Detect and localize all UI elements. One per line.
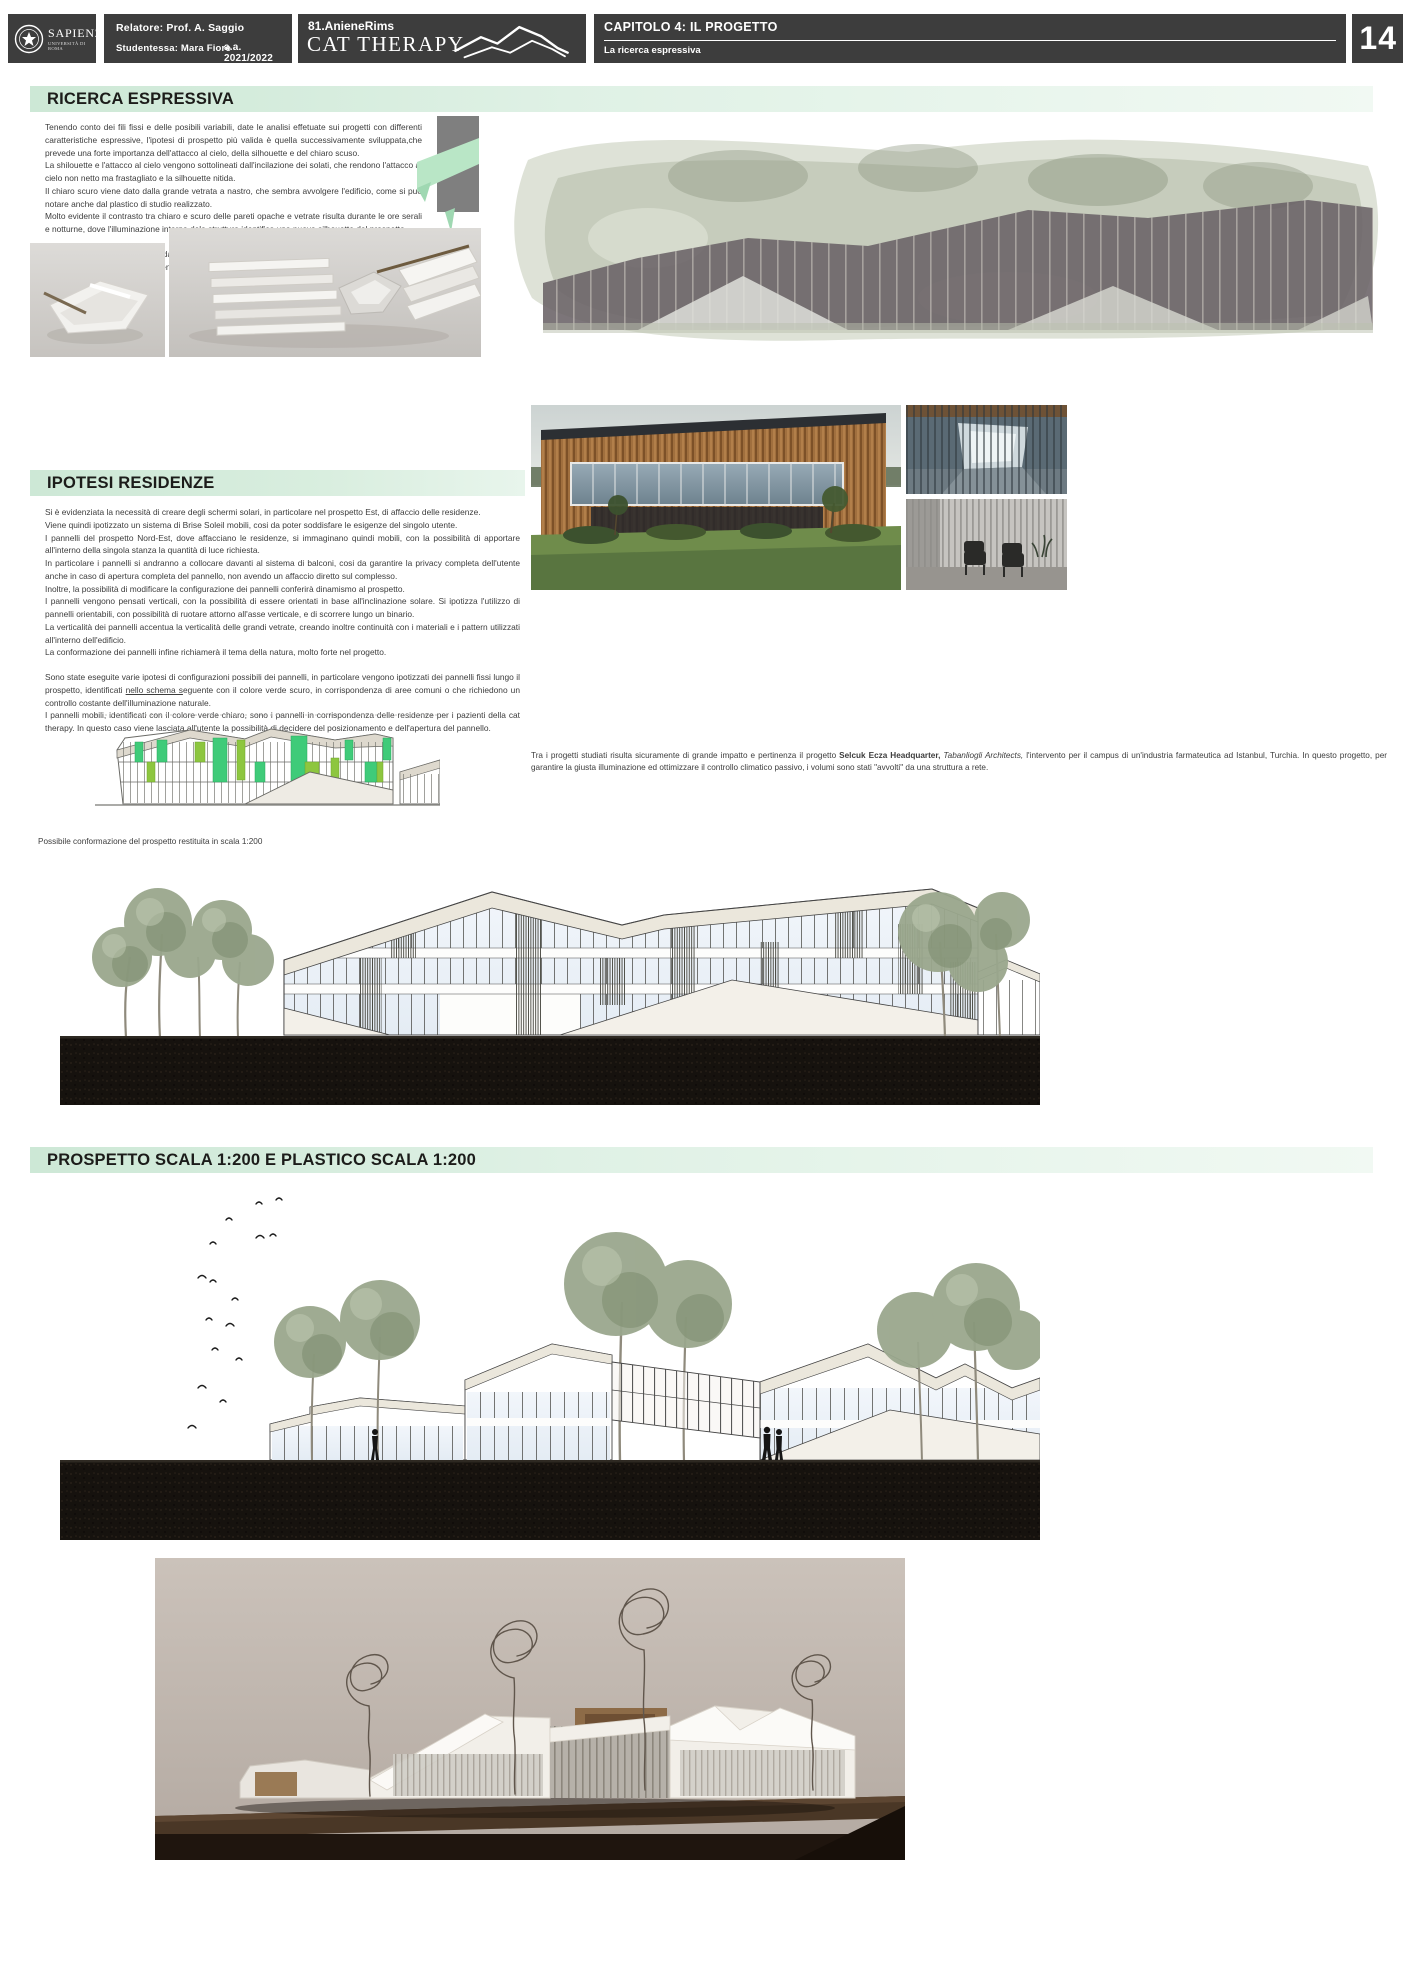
section-band-ipotesi: IPOTESI RESIDENZE bbox=[30, 470, 525, 496]
panel-scheme-elevation bbox=[95, 712, 440, 812]
section-title-ipotesi: IPOTESI RESIDENZE bbox=[30, 470, 525, 493]
caption-architects: Tabanliogli Architects, bbox=[940, 751, 1023, 760]
paragraph: Tenendo conto dei fili fissi e delle pos… bbox=[45, 121, 422, 159]
header-page-number-block: 14 bbox=[1352, 14, 1403, 63]
chapter-divider bbox=[604, 40, 1336, 41]
header-chapter-block: CAPITOLO 4: IL PROGETTO La ricerca espre… bbox=[594, 14, 1346, 63]
university-name: SAPIENZA bbox=[48, 26, 112, 41]
elevation-drawing-2 bbox=[60, 1192, 1040, 1542]
section-title-ricerca: RICERCA ESPRESSIVA bbox=[30, 86, 1373, 109]
student-label: Studentessa: Mara Fiore bbox=[116, 43, 231, 54]
paragraph: I pannelli del prospetto Nord-Est, dove … bbox=[45, 532, 520, 558]
reference-interior-photo-top bbox=[906, 405, 1067, 494]
reference-interior-photo-bottom bbox=[906, 499, 1067, 590]
final-model-photo bbox=[155, 1558, 905, 1860]
paragraph: Il chiaro scuro viene dato dalla grande … bbox=[45, 185, 422, 211]
thesis-board-page: SAPIENZA UNIVERSITÀ DI ROMA Relatore: Pr… bbox=[0, 0, 1403, 1987]
ground-band bbox=[60, 1036, 1040, 1105]
caption-segment: Tra i progetti studiati risulta sicurame… bbox=[531, 751, 839, 760]
project-title: CAT THERAPY bbox=[307, 32, 465, 57]
project-code: 81.AnieneRims bbox=[308, 19, 394, 33]
academic-year: a.a. 2021/2022 bbox=[224, 42, 292, 64]
chapter-subtitle: La ricerca espressiva bbox=[604, 45, 701, 56]
chapter-title: CAPITOLO 4: IL PROGETTO bbox=[604, 20, 778, 34]
caption-project-name: Selcuk Ecza Headquarter, bbox=[839, 751, 940, 760]
ipotesi-text-column: Si è evidenziata la necessità di creare … bbox=[45, 506, 520, 735]
paragraph: La verticalità dei pannelli accentua la … bbox=[45, 621, 520, 647]
header-people-block: Relatore: Prof. A. Saggio Studentessa: M… bbox=[104, 14, 292, 63]
page-number: 14 bbox=[1359, 20, 1397, 57]
ground-band bbox=[60, 1460, 1040, 1540]
paragraph: I pannelli vengono pensati verticali, co… bbox=[45, 595, 520, 621]
paragraph-with-underline: Sono state eseguite varie ipotesi di con… bbox=[45, 671, 520, 709]
paragraph: In particolare i pannelli si andranno a … bbox=[45, 557, 520, 583]
paragraph: Si è evidenziata la necessità di creare … bbox=[45, 506, 520, 519]
study-model-photo-2 bbox=[169, 228, 481, 357]
sapienza-crest-icon bbox=[12, 22, 46, 56]
reference-caption: Tra i progetti studiati risulta sicurame… bbox=[531, 750, 1387, 775]
paragraph: La shilouette e l'attacco al cielo vengo… bbox=[45, 159, 422, 185]
watercolor-elevation-sketch bbox=[488, 118, 1390, 346]
paragraph: Inoltre, la possibilità di modificare la… bbox=[45, 583, 520, 596]
mountain-logo-icon bbox=[446, 18, 578, 60]
university-subtitle: UNIVERSITÀ DI ROMA bbox=[48, 41, 96, 51]
trees-left bbox=[92, 888, 274, 1038]
section-band-ricerca: RICERCA ESPRESSIVA bbox=[30, 86, 1373, 112]
study-model-photo-1 bbox=[30, 243, 165, 357]
birds-flock-icon bbox=[188, 1198, 282, 1428]
balcony-screen-band bbox=[612, 1362, 760, 1438]
section-title-prospetto: PROSPETTO SCALA 1:200 E PLASTICO SCALA 1… bbox=[30, 1147, 1373, 1170]
paragraph: La conformazione dei pannelli infine ric… bbox=[45, 646, 520, 659]
advisor-label: Relatore: Prof. A. Saggio bbox=[116, 22, 244, 34]
reference-building-photo bbox=[531, 405, 901, 590]
section-band-prospetto: PROSPETTO SCALA 1:200 E PLASTICO SCALA 1… bbox=[30, 1147, 1373, 1173]
header-project-block: 81.AnieneRims CAT THERAPY bbox=[298, 14, 586, 63]
underlined-phrase: nello schema s bbox=[126, 685, 183, 695]
header-logo-block: SAPIENZA UNIVERSITÀ DI ROMA bbox=[8, 14, 96, 63]
paragraph: Viene quindi ipotizzato un sistema di Br… bbox=[45, 519, 520, 532]
scale-caption: Possibile conformazione del prospetto re… bbox=[38, 836, 438, 848]
elevation-drawing-1 bbox=[60, 862, 1040, 1110]
